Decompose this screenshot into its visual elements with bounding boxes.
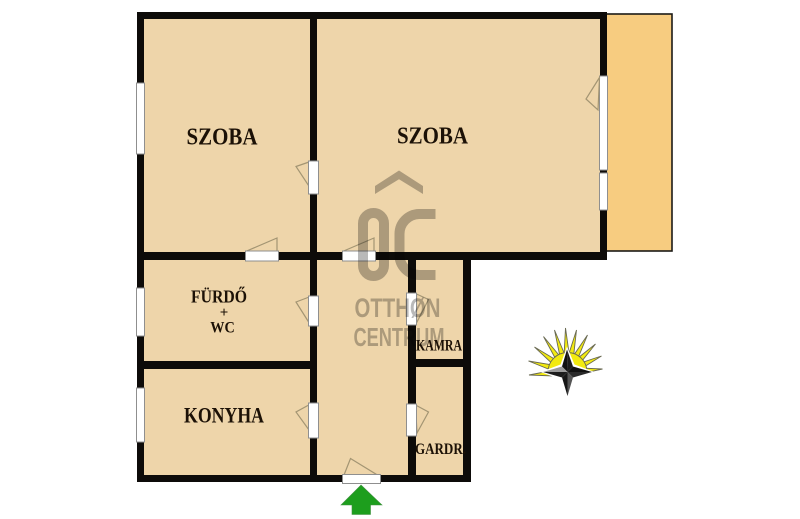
svg-text:KONYHA: KONYHA: [184, 403, 265, 428]
svg-text:GARDR.: GARDR.: [415, 441, 466, 458]
svg-text:FÜRDŐ: FÜRDŐ: [191, 286, 247, 307]
svg-text:WC: WC: [210, 320, 235, 337]
svg-text:SZOBA: SZOBA: [187, 125, 259, 151]
svg-text:KAMRA: KAMRA: [416, 338, 462, 355]
svg-text:SZOBA: SZOBA: [397, 124, 469, 150]
svg-text:OTTHØN: OTTHØN: [355, 293, 441, 323]
